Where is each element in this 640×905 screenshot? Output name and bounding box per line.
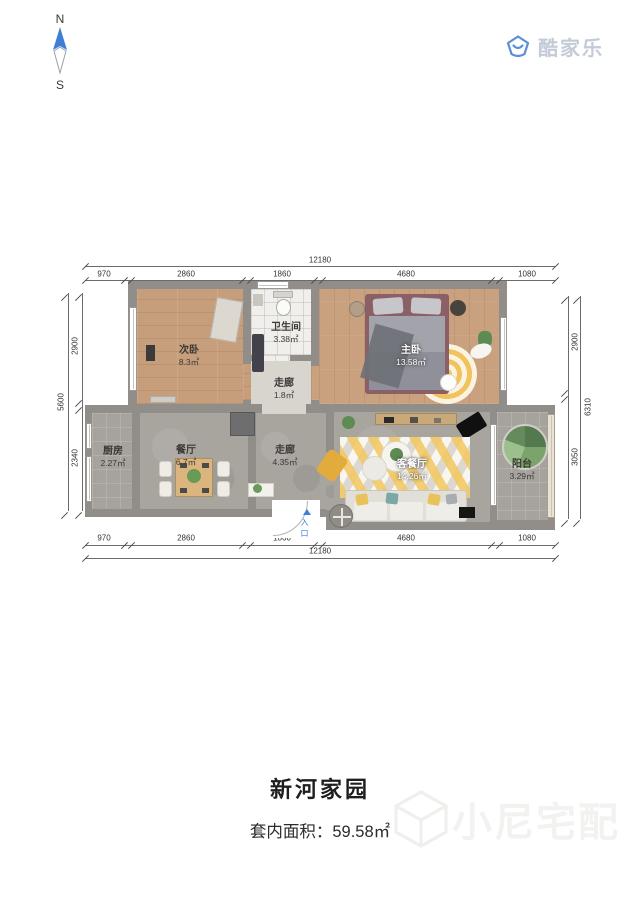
total-area-value: 59.58㎡: [332, 823, 390, 841]
room-name: 卫生间: [271, 321, 301, 334]
label-hall-small: 走廊 1.8㎡: [274, 377, 294, 401]
dim-bottom-seg: 4680: [397, 534, 415, 543]
room-name: 客餐厅: [397, 458, 427, 471]
plan-title: 新河家园: [0, 772, 640, 804]
dim-line-left-segments: [82, 293, 83, 511]
dim-tick: [82, 542, 89, 549]
washing-machine: [252, 334, 264, 372]
dim-left-total: 5600: [57, 393, 66, 411]
radiator: [150, 396, 176, 403]
console-item: [384, 417, 394, 423]
dim-top-total: 12180: [309, 256, 331, 265]
room-name: 厨房: [100, 445, 125, 458]
dim-line-top-segments: [85, 280, 555, 281]
fridge: [230, 412, 255, 436]
door-opening-hall: [262, 403, 306, 414]
dim-tick: [82, 263, 89, 270]
window-kitchen-upper: [86, 423, 92, 449]
table-plant: [187, 469, 201, 483]
dim-tick: [75, 512, 82, 519]
dining-chair: [159, 481, 172, 497]
dim-tick: [561, 520, 568, 527]
tv-panel: [146, 345, 155, 361]
label-living-dining: 客餐厅 14.26㎡: [397, 458, 427, 482]
room-name: 主卧: [396, 344, 426, 357]
kujiale-logo: 酷家乐: [505, 32, 604, 61]
dim-tick: [573, 297, 580, 304]
tv-console: [375, 413, 457, 425]
side-table-black: [459, 507, 475, 518]
window-balcony: [547, 414, 555, 518]
sofa-pillow-gray: [446, 493, 458, 504]
dim-tick: [128, 542, 135, 549]
dim-top-seg: 4680: [397, 270, 415, 279]
dim-bottom-seg: 970: [97, 534, 110, 543]
room-area: 2.27㎡: [100, 458, 125, 469]
dim-line-right-segments: [568, 296, 569, 519]
dim-top-seg: 1080: [518, 270, 536, 279]
dim-tick: [82, 555, 89, 562]
balcony-sliding-door: [490, 424, 497, 506]
dim-tick: [488, 542, 495, 549]
room-name: 走廊: [274, 377, 294, 390]
console-item: [434, 418, 441, 423]
dim-tick: [82, 277, 89, 284]
room-name: 走廊: [272, 444, 297, 457]
window-master-bedroom: [500, 317, 507, 391]
bath-shelf: [253, 294, 263, 306]
toilet-tank: [273, 291, 293, 298]
bed-pillow: [372, 297, 403, 315]
brand-name: 酷家乐: [538, 32, 604, 61]
window-bathroom: [257, 281, 289, 289]
entry-door: 入口: [272, 500, 320, 538]
room-area: 3.38㎡: [271, 334, 301, 345]
room-area: 6.7㎡: [176, 457, 196, 468]
dim-line-top-total: [85, 266, 555, 267]
dim-tick: [75, 407, 82, 414]
fan-blade-bar: [333, 516, 351, 518]
label-master-bedroom: 主卧 13.58㎡: [396, 344, 426, 368]
dim-tick: [561, 396, 568, 403]
dim-tick: [239, 542, 246, 549]
sofa-pillow-yellow: [427, 493, 441, 506]
sofa-pillow-yellow: [355, 493, 368, 506]
north-arrow: N S: [44, 12, 76, 94]
dim-tick: [75, 294, 82, 301]
dim-right-seg: 3050: [571, 448, 580, 466]
door-opening-secondary: [243, 364, 251, 400]
toilet-bowl: [276, 299, 291, 316]
door-opening-bathroom: [262, 355, 290, 361]
pedestal-fan: [329, 504, 353, 528]
room-name: 阳台: [509, 458, 534, 471]
room-area: 13.58㎡: [396, 357, 426, 368]
console-item: [410, 417, 418, 423]
dim-tick: [552, 277, 559, 284]
placemat: [202, 463, 209, 468]
dim-right-seg: 2900: [571, 333, 580, 351]
room-area: 4.35㎡: [272, 457, 297, 468]
label-hall: 走廊 4.35㎡: [272, 444, 297, 468]
placemat: [180, 488, 187, 493]
room-name: 餐厅: [176, 444, 196, 457]
dining-chair: [159, 461, 172, 477]
compass-needle-icon: [49, 26, 71, 74]
label-dining: 餐厅 6.7㎡: [176, 444, 196, 468]
dim-top-seg: 2860: [177, 270, 195, 279]
dim-top-seg: 970: [97, 270, 110, 279]
floor-lamp: [440, 374, 457, 391]
dim-line-left-total: [68, 293, 69, 511]
living-plant: [342, 416, 355, 429]
label-balcony: 阳台 3.29㎡: [509, 458, 534, 482]
dim-tick: [247, 542, 254, 549]
dim-bottom-total: 12180: [309, 547, 331, 556]
coffee-table-small: [362, 456, 387, 481]
total-area-label: 套内面积：: [250, 823, 333, 841]
dim-right-total: 6310: [584, 398, 593, 416]
dining-chair: [217, 481, 230, 497]
dim-tick: [561, 297, 568, 304]
room-area: 3.29㎡: [509, 471, 534, 482]
dim-tick: [61, 512, 68, 519]
label-kitchen: 厨房 2.27㎡: [100, 445, 125, 469]
dim-top-seg: 1860: [273, 270, 291, 279]
dining-chair: [217, 461, 230, 477]
dim-left-seg: 2340: [71, 449, 80, 467]
compass-south-label: S: [56, 78, 64, 92]
bedside-drum-table: [450, 300, 466, 316]
dim-tick: [552, 263, 559, 270]
room-area: 1.8㎡: [274, 390, 294, 401]
room-area: 8.3㎡: [179, 357, 199, 368]
dim-bottom-seg: 1080: [518, 534, 536, 543]
entry-arrow-icon: [303, 509, 311, 515]
entry-label: 入口: [301, 517, 314, 539]
dim-tick: [573, 520, 580, 527]
dim-left-seg: 2900: [71, 337, 80, 355]
door-opening-master: [311, 366, 319, 400]
sofa: [345, 490, 467, 522]
label-bathroom: 卫生间 3.38㎡: [271, 321, 301, 345]
kujiale-shield-icon: [505, 34, 531, 60]
dim-tick: [552, 555, 559, 562]
window-kitchen-lower: [86, 456, 92, 502]
total-area: 套内面积：59.58㎡: [0, 818, 640, 842]
dim-tick: [61, 294, 68, 301]
room-name: 次卧: [179, 344, 199, 357]
window-secondary-bedroom: [129, 307, 137, 391]
sofa-cushion: [390, 502, 423, 520]
dim-tick: [496, 542, 503, 549]
bed-pillow: [411, 297, 442, 315]
hall-plant: [253, 484, 262, 493]
sofa-pillow-teal: [385, 492, 398, 504]
bedside-stool: [349, 301, 365, 317]
placemat: [202, 488, 209, 493]
compass-north-label: N: [56, 12, 65, 26]
dim-bottom-seg: 2860: [177, 534, 195, 543]
dim-tick: [552, 542, 559, 549]
dim-line-right-total: [580, 296, 581, 519]
room-area: 14.26㎡: [397, 471, 427, 482]
label-secondary-bedroom: 次卧 8.3㎡: [179, 344, 199, 368]
dim-line-bottom-total: [85, 558, 555, 559]
